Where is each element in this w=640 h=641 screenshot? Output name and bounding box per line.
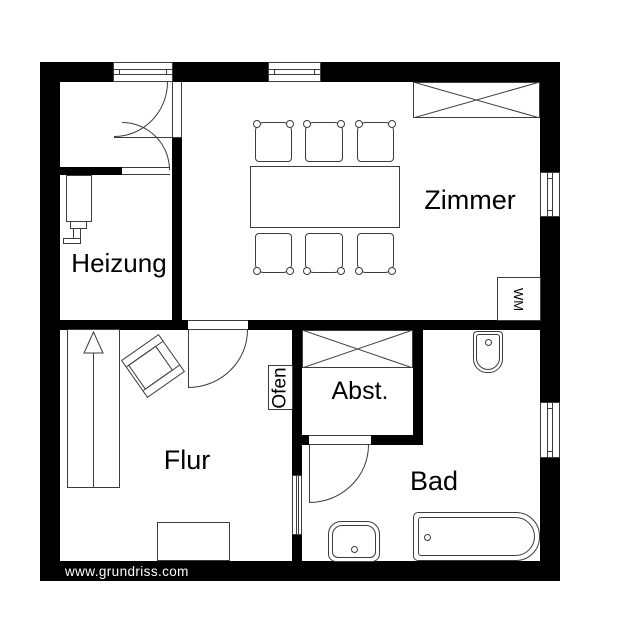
toilet-icon <box>473 331 503 373</box>
doorway-zimmer-flur <box>188 320 248 330</box>
room-label-bad: Bad <box>384 467 484 495</box>
room-label-flur: Flur <box>137 446 237 474</box>
dining-chair <box>255 122 292 162</box>
bathtub-icon <box>413 512 540 561</box>
window-top-zimmer <box>268 62 321 82</box>
wall-abst-right <box>413 330 423 445</box>
door-leaf-abst-bad <box>309 445 310 503</box>
entry-door-window <box>113 62 173 82</box>
wall-right <box>540 62 560 581</box>
window-right-zimmer <box>540 172 560 217</box>
wall-mid-right <box>248 320 540 330</box>
boiler-icon <box>66 175 92 222</box>
boiler-foot <box>63 238 81 244</box>
door-arc-heizung <box>122 122 170 170</box>
floor-plan: WM Ofen Zimmer Heizung Flur B <box>0 0 640 641</box>
wall-abst-bottom <box>371 435 423 445</box>
wardrobe-icon <box>413 82 540 118</box>
doorway-abst-bad <box>309 435 371 445</box>
door-arc-abst-bad <box>309 445 369 503</box>
stairs-icon <box>67 329 120 488</box>
sink-icon <box>328 521 380 562</box>
door-leaf-zimmer-flur <box>188 330 189 388</box>
wall-entry-vertical <box>172 137 182 330</box>
wall-abst-bottom-stub <box>302 435 309 445</box>
dining-chair <box>357 122 394 162</box>
dining-chair <box>255 233 292 273</box>
stove-box: Ofen <box>268 365 293 410</box>
wall-flur-bad-lower <box>292 535 302 561</box>
room-label-heizung: Heizung <box>69 249 169 277</box>
bench <box>157 522 230 561</box>
dining-chair <box>305 122 343 162</box>
dining-chair <box>357 233 394 273</box>
watermark: www.grundriss.com <box>65 564 189 579</box>
armchair-icon <box>121 334 185 398</box>
opening-flur-bad <box>292 475 302 535</box>
dining-table <box>250 166 400 228</box>
room-label-abstellraum: Abst. <box>310 377 410 405</box>
wall-heizung-top <box>60 167 122 175</box>
dining-chair <box>305 233 343 273</box>
window-right-bad <box>540 402 560 458</box>
door-arc-zimmer-flur <box>188 330 248 388</box>
wall-flur-bad-upper <box>292 330 302 475</box>
washing-machine-box: WM <box>497 277 541 321</box>
storage-shelf-icon <box>302 330 413 368</box>
stove-label: Ofen <box>270 367 292 408</box>
doorway-entry-passage <box>172 82 182 137</box>
wall-left <box>40 62 60 581</box>
room-label-zimmer: Zimmer <box>420 186 520 214</box>
washing-machine-label: WM <box>511 287 526 310</box>
